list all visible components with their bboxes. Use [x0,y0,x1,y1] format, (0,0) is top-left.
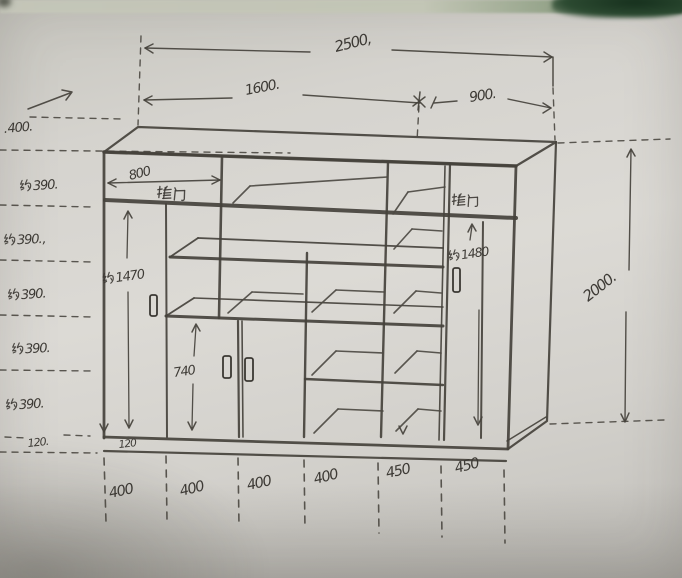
left-label-390-2: 390., [4,232,47,249]
bottom-dim-1: 400 [108,481,136,502]
label-base-120: 120 [118,437,138,451]
bottom-dim-2: 400 [178,478,206,500]
bottom-dim-3: 400 [246,473,274,494]
svg-text:0: 0 [187,363,197,379]
svg-text:0: 0 [261,473,273,491]
svg-text:0: 0 [400,461,412,479]
bottom-dim-5: 450 [385,461,413,482]
left-label-390-1: 390. [20,177,59,195]
door-handle [453,268,460,292]
dim-900-label: 900. [468,86,498,106]
svg-text:.: . [54,177,59,192]
left-label-400: .400. [3,119,34,137]
label-sliding-door-left [157,186,185,201]
label-door-height-1480: 1480 [448,243,490,264]
sketch-photo: 2500,1600.900.2000..400.390.390.,390.390… [0,0,682,578]
dim-2000-label: 2000. [579,268,620,305]
dim-1600-label: 1600. [244,76,282,98]
svg-text:.: . [28,119,33,134]
left-label-390-5: 390. [6,396,45,414]
left-label-390-4: 390. [12,341,51,358]
cabinet-sketch: 2500,1600.900.2000..400.390.390.,390.390… [0,0,682,578]
svg-text:.: . [42,286,47,301]
dim-2500-label: 2500, [333,29,374,56]
svg-text:.: . [40,396,45,411]
door-handle [223,356,231,378]
label-door-height-740: 740 [172,363,196,381]
label-door-height-1470: 1470 [102,267,146,288]
door-handle [150,295,157,316]
svg-text:0: 0 [480,243,490,259]
bottom-dim-4: 400 [312,466,340,488]
label-sliding-door-right [452,194,478,207]
svg-text:.: . [46,341,51,356]
left-label-390-3: 390. [8,286,47,304]
label-800: 800 [127,164,153,184]
svg-text:0: 0 [136,267,146,283]
door-handle [245,358,253,381]
svg-text:0: 0 [123,481,135,499]
svg-text:.: . [45,435,50,448]
left-label-120: 120. [27,435,50,450]
bottom-dim-6: 450 [453,455,481,477]
svg-text:,: , [42,232,47,247]
